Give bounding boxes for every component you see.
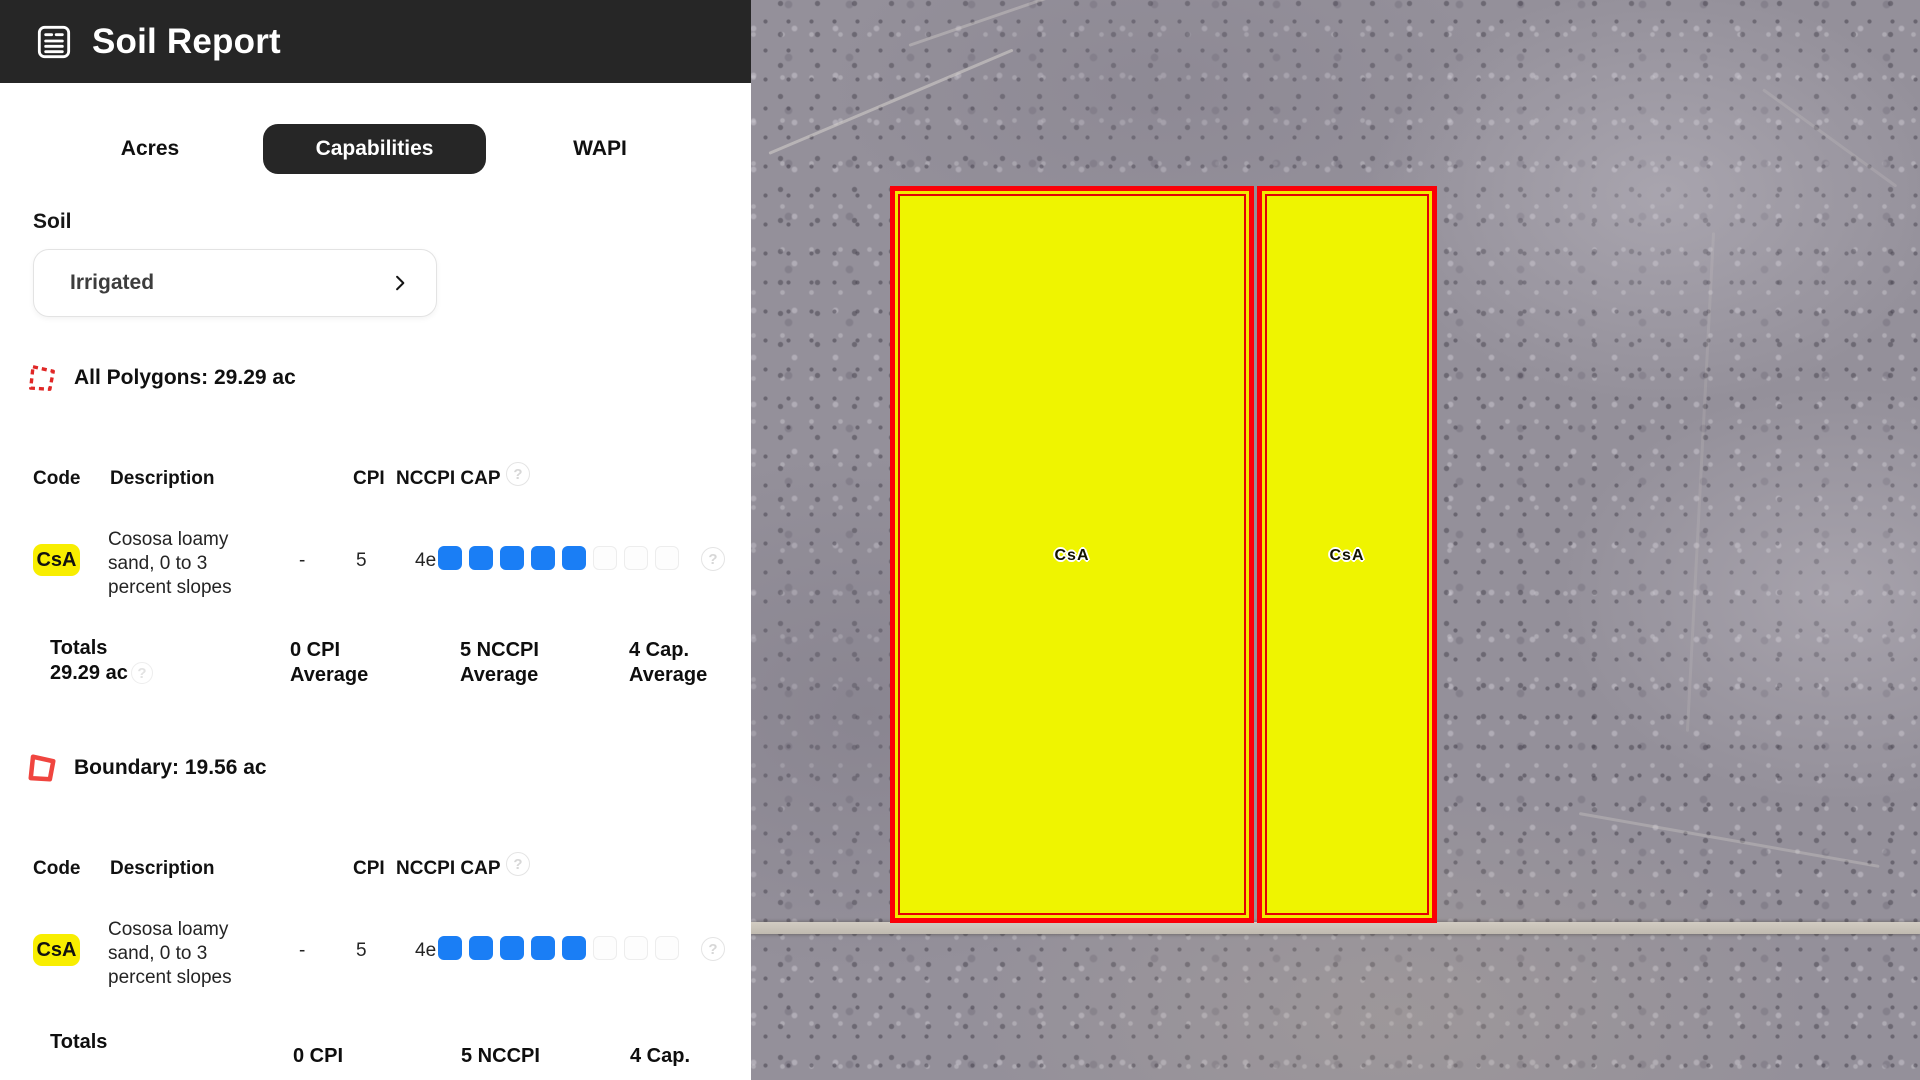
- soil-code-badge: CsA: [33, 544, 80, 576]
- page-title: Soil Report: [92, 22, 281, 62]
- column-header-cpi: CPI: [353, 858, 385, 880]
- capability-square: [624, 546, 648, 570]
- column-header-code: Code: [33, 858, 81, 880]
- help-glyph: ?: [513, 466, 522, 483]
- capability-square: [655, 546, 679, 570]
- nccpi-average: 5 NCCPI: [461, 1044, 540, 1069]
- column-header-code: Code: [33, 468, 81, 490]
- tab-capabilities[interactable]: Capabilities: [263, 124, 486, 174]
- help-icon[interactable]: ?: [506, 852, 530, 876]
- tab-wapi[interactable]: WAPI: [525, 124, 675, 174]
- soil-description: Cososa loamy sand, 0 to 3 percent slopes: [108, 528, 232, 600]
- help-icon[interactable]: ?: [701, 937, 725, 961]
- capability-square: [500, 546, 524, 570]
- capability-squares: [438, 936, 679, 960]
- nccpi-average: 5 NCCPI Average: [460, 638, 539, 688]
- capability-square: [469, 546, 493, 570]
- nccpi-value: 5: [356, 940, 367, 962]
- help-icon[interactable]: ?: [506, 462, 530, 486]
- help-glyph: ?: [708, 551, 717, 568]
- capability-square: [531, 936, 555, 960]
- soil-code-badge: CsA: [33, 934, 80, 966]
- section-title-text: Boundary: 19.56 ac: [74, 756, 267, 780]
- capability-squares: [438, 546, 679, 570]
- capability-square: [562, 936, 586, 960]
- soil-type-selector[interactable]: Irrigated: [33, 249, 437, 317]
- report-icon: [34, 22, 74, 62]
- cpi-value: -: [299, 550, 305, 572]
- nccpi-value: 5: [356, 550, 367, 572]
- column-header-cpi: CPI: [353, 468, 385, 490]
- cpi-value: -: [299, 940, 305, 962]
- boundary-section-title: Boundary: 19.56 ac: [24, 750, 267, 786]
- capability-square: [500, 936, 524, 960]
- cap-class-value: 4e: [415, 940, 436, 962]
- polygon-dashed-icon: [24, 360, 60, 396]
- capability-square: [562, 546, 586, 570]
- capability-square: [469, 936, 493, 960]
- help-icon[interactable]: ?: [701, 547, 725, 571]
- cap-average: 4 Cap.: [630, 1044, 690, 1069]
- soil-report-app: CsA CsA Soil Report Acres Capabilities W…: [0, 0, 1920, 1080]
- capability-square: [624, 936, 648, 960]
- cap-average: 4 Cap. Average: [629, 638, 707, 688]
- totals-block: Totals 29.29 ac: [50, 636, 128, 686]
- soil-polygon-label: CsA: [895, 547, 1249, 565]
- soil-section-label: Soil: [33, 210, 72, 234]
- section-title-text: All Polygons: 29.29 ac: [74, 366, 296, 390]
- capability-square: [438, 936, 462, 960]
- soil-type-value: Irrigated: [70, 271, 154, 295]
- all-polygons-section-title: All Polygons: 29.29 ac: [24, 360, 296, 396]
- satellite-map[interactable]: CsA CsA: [751, 0, 1920, 1080]
- column-header-description: Description: [110, 468, 215, 490]
- help-glyph: ?: [708, 941, 717, 958]
- totals-block: Totals: [50, 1030, 107, 1055]
- polygon-solid-icon: [24, 750, 60, 786]
- column-header-nccpi-cap: NCCPI CAP: [396, 468, 501, 490]
- soil-polygon-right[interactable]: CsA: [1257, 186, 1437, 923]
- capability-square: [438, 546, 462, 570]
- cpi-average: 0 CPI: [293, 1044, 343, 1069]
- soil-polygon-left[interactable]: CsA: [890, 186, 1254, 923]
- column-header-description: Description: [110, 858, 215, 880]
- capability-square: [593, 546, 617, 570]
- map-road: [751, 922, 1920, 934]
- help-glyph: ?: [137, 665, 146, 682]
- column-header-nccpi-cap: NCCPI CAP: [396, 858, 501, 880]
- capability-square: [655, 936, 679, 960]
- capability-square: [531, 546, 555, 570]
- chevron-right-icon: [390, 273, 410, 293]
- cpi-average: 0 CPI Average: [290, 638, 368, 688]
- soil-polygon-label: CsA: [1262, 547, 1432, 565]
- help-glyph: ?: [513, 856, 522, 873]
- help-icon[interactable]: ?: [131, 662, 153, 684]
- cap-class-value: 4e: [415, 550, 436, 572]
- app-header: Soil Report: [0, 0, 751, 83]
- capability-square: [593, 936, 617, 960]
- tab-acres[interactable]: Acres: [75, 124, 225, 174]
- soil-description: Cososa loamy sand, 0 to 3 percent slopes: [108, 918, 232, 990]
- soil-report-panel: Soil Report Acres Capabilities WAPI Soil…: [0, 0, 751, 1080]
